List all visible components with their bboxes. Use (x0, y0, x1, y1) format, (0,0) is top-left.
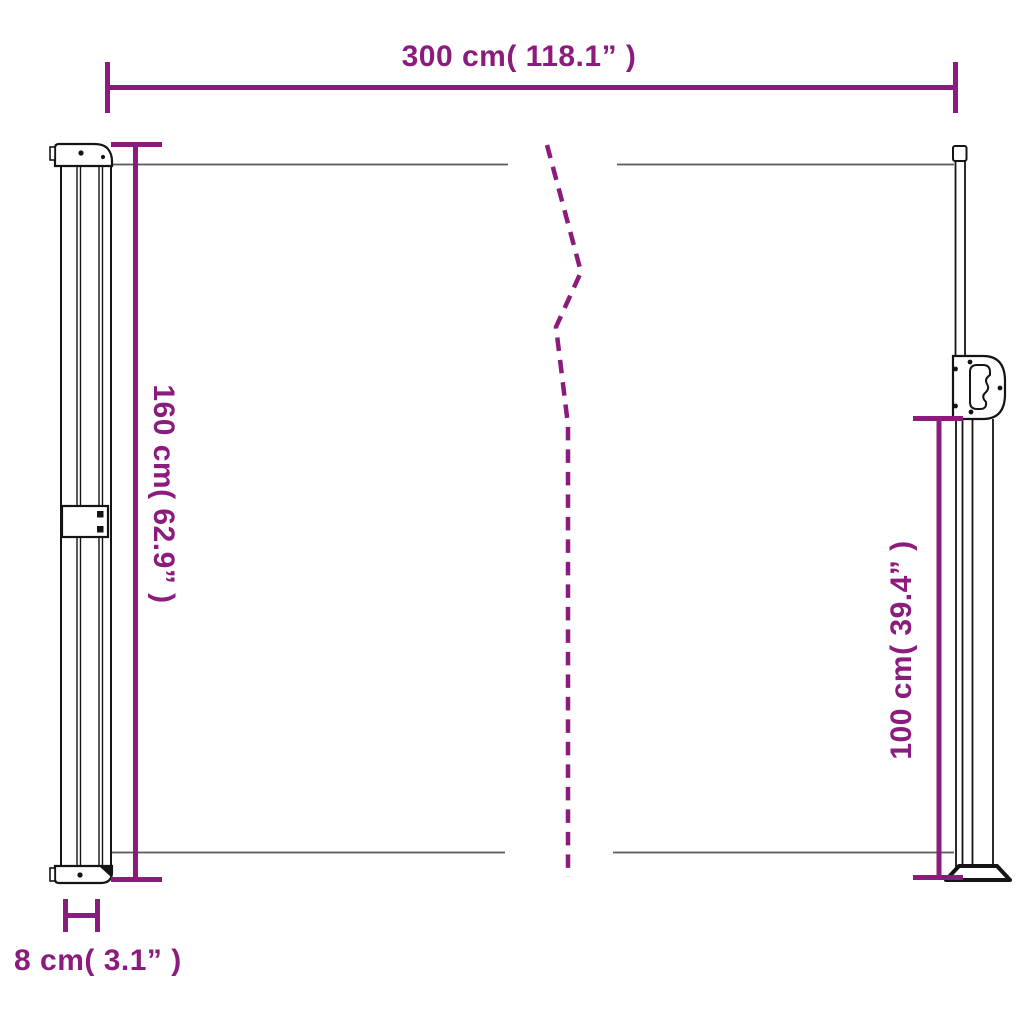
dim-width-label: 300 cm( 118.1” ) (402, 42, 637, 72)
right-support-pole (946, 146, 1010, 880)
bracket-clip (97, 511, 104, 518)
bracket-clip (97, 526, 104, 533)
handle-grip-slot (970, 365, 990, 409)
dim-depth-line (63, 899, 100, 932)
screw-dot (77, 872, 82, 877)
cassette-bottom-notch (50, 868, 55, 881)
break-line (547, 145, 581, 877)
dim-depth-label: 8 cm( 3.1” ) (14, 946, 182, 976)
screw-dot (968, 360, 973, 365)
dim-height-left-label: 160 cm( 62.9” ) (148, 384, 178, 603)
cassette-top-notch (50, 147, 55, 160)
screw-dot (101, 155, 105, 159)
dim-height-right-label: 100 cm( 39.4” ) (887, 540, 917, 759)
screw-dot (969, 410, 974, 415)
screw-dot (953, 404, 958, 409)
pole-top-cap (953, 146, 967, 161)
screw-dot (998, 386, 1003, 391)
screw-dot (953, 367, 958, 372)
screw-dot (78, 150, 83, 155)
left-cassette-post (50, 144, 112, 883)
dimension-diagram: 300 cm( 118.1” ) 160 cm( 62.9” ) 100 cm(… (0, 0, 1024, 1024)
